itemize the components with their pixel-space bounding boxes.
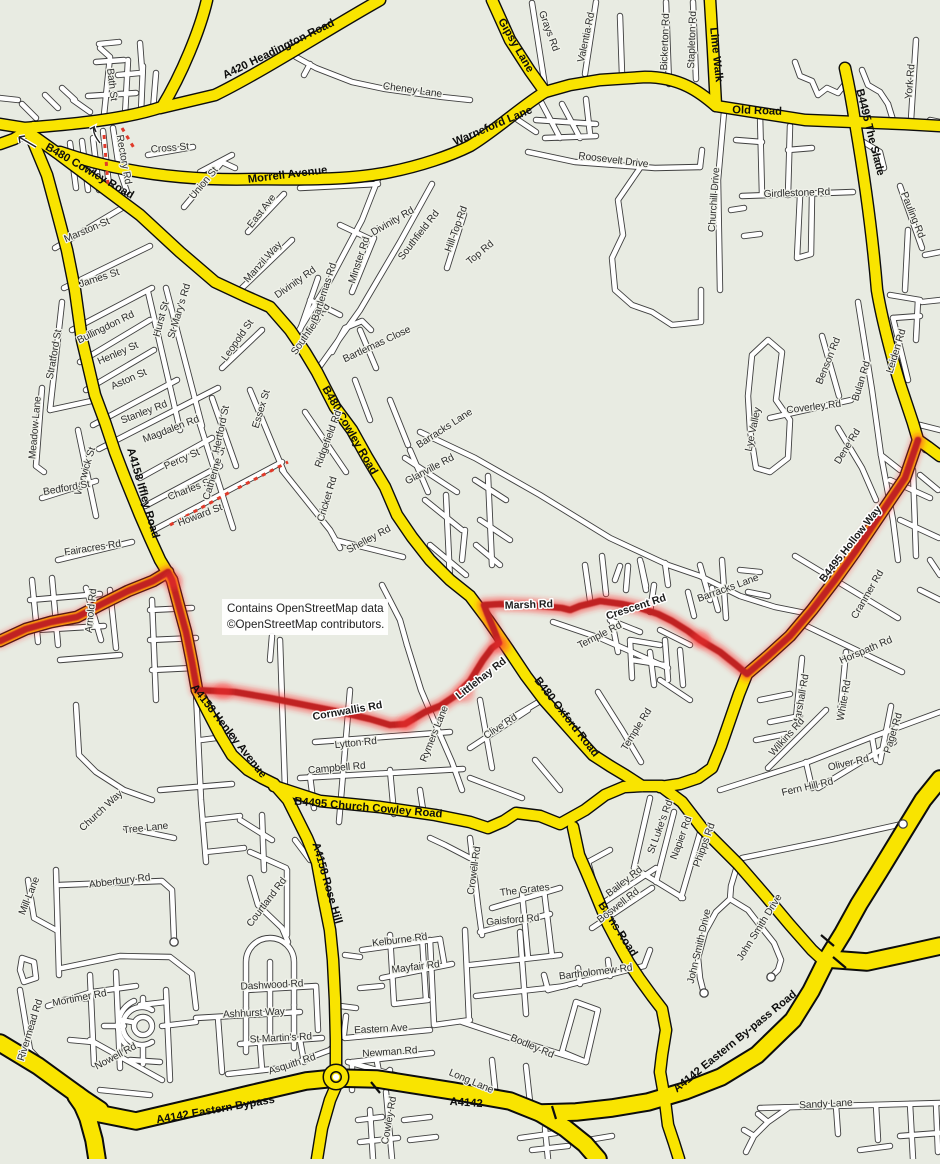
svg-text:Girdlestone Rd: Girdlestone Rd [763, 187, 830, 200]
svg-text:Marsh Rd: Marsh Rd [505, 598, 554, 612]
svg-text:Old Road: Old Road [732, 104, 782, 118]
svg-text:A4142: A4142 [449, 1096, 483, 1110]
svg-text:Stapleton Rd: Stapleton Rd [686, 10, 699, 68]
svg-text:©OpenStreetMap contributors.: ©OpenStreetMap contributors. [227, 618, 384, 631]
svg-text:Bickerton Rd: Bickerton Rd [659, 13, 672, 71]
svg-text:Contains OpenStreetMap data: Contains OpenStreetMap data [227, 602, 384, 615]
